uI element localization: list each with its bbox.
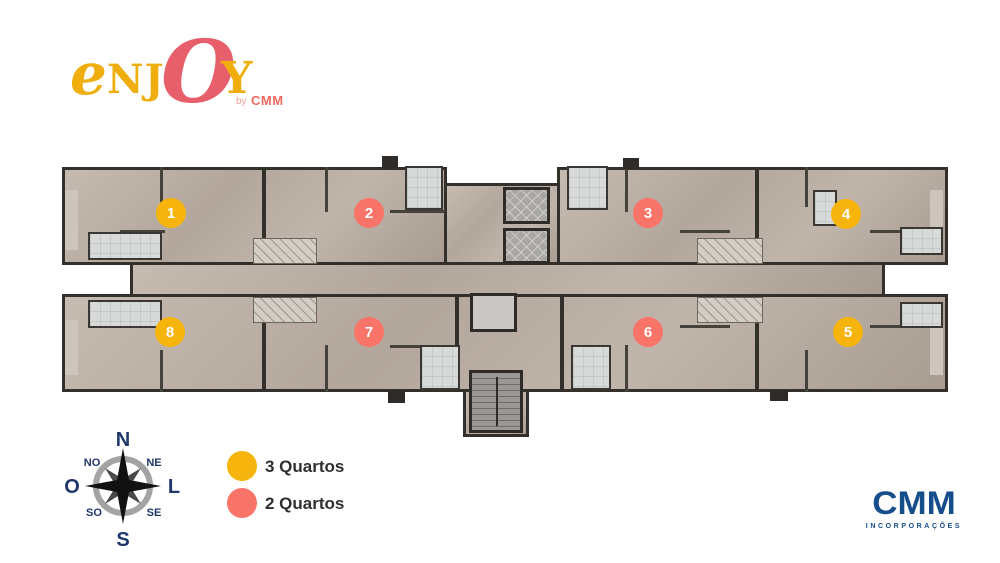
brand-logo: e NJ O Y by CMM: [0, 0, 320, 130]
compass-letter-no: NO: [84, 457, 101, 469]
wall-segment: [805, 167, 808, 207]
cmm-logo-subtitle: INCORPORAÇÕES: [862, 523, 966, 530]
wall-segment: [160, 350, 163, 392]
staircase-icon: [469, 370, 523, 433]
closet-area: [697, 238, 763, 264]
unit-marker-4: 4: [831, 199, 861, 229]
unit-marker-2: 2: [354, 198, 384, 228]
logo-byline-by: by: [236, 97, 247, 107]
compass-letter-o: O: [64, 476, 80, 498]
legend-label-3-quartos: 3 Quartos: [265, 457, 344, 477]
compass-letter-ne: NE: [146, 457, 161, 469]
bathroom-area: [900, 302, 943, 328]
bathroom-area: [88, 300, 162, 328]
bathroom-area: [88, 232, 162, 260]
elevator-shaft-icon: [470, 293, 517, 332]
legend: 3 Quartos 2 Quartos: [220, 440, 400, 530]
floor-plan: 1 2 3 4 5 6 7 8: [60, 150, 948, 442]
wall-segment: [680, 325, 730, 328]
closet-area: [253, 238, 317, 264]
roof-bump: [623, 158, 639, 169]
wall-segment: [625, 345, 628, 392]
elevator-shaft-icon: [503, 187, 550, 224]
wall-segment: [325, 167, 328, 212]
bathroom-area: [405, 166, 443, 210]
compass-rose: N S O L NO NE SO SE: [52, 424, 197, 556]
bathroom-area: [567, 166, 608, 210]
wall-segment: [805, 350, 808, 392]
roof-bump: [382, 156, 398, 169]
compass-star-icon: N S O L NO NE SO SE: [52, 424, 197, 556]
page-root: { "brand": { "logo": { "e": "e", "nj": "…: [0, 0, 1000, 563]
closet-area: [697, 297, 763, 323]
unit-marker-1: 1: [156, 198, 186, 228]
balcony-strip: [65, 320, 78, 375]
balcony-strip: [930, 320, 943, 375]
compass-letter-n: N: [116, 429, 130, 451]
closet-area: [253, 297, 317, 323]
logo-letter-e: e: [70, 45, 107, 103]
cmm-logo-brand: CMM: [862, 487, 966, 519]
bathroom-area: [571, 345, 611, 390]
logo-letter-y: Y: [221, 57, 252, 101]
plan-corridor: [130, 262, 885, 297]
compass-letter-s: S: [116, 529, 129, 551]
elevator-shaft-icon: [503, 228, 550, 264]
unit-marker-6: 6: [633, 317, 663, 347]
wall-segment: [390, 210, 445, 213]
compass-letter-so: SO: [86, 507, 102, 519]
legend-label-2-quartos: 2 Quartos: [265, 494, 344, 514]
cmm-logo: CMM INCORPORAÇÕES: [862, 486, 966, 530]
roof-bump: [770, 390, 788, 401]
stair-divider: [496, 377, 498, 426]
roof-bump: [388, 390, 405, 403]
unit-marker-5: 5: [833, 317, 863, 347]
unit-marker-3: 3: [633, 198, 663, 228]
compass-letter-l: L: [168, 476, 180, 498]
unit-marker-7: 7: [354, 317, 384, 347]
bathroom-area: [900, 227, 943, 255]
wall-segment: [625, 167, 628, 212]
legend-dot-2-quartos: [227, 488, 257, 518]
logo-byline-brand: CMM: [251, 94, 284, 107]
logo-letters-nj: NJ: [107, 60, 165, 100]
balcony-strip: [65, 190, 78, 250]
wall-segment: [560, 294, 564, 392]
wall-segment: [680, 230, 730, 233]
compass-letter-se: SE: [147, 507, 162, 519]
legend-dot-3-quartos: [227, 451, 257, 481]
bathroom-area: [420, 345, 460, 390]
wall-segment: [325, 345, 328, 392]
unit-marker-8: 8: [155, 317, 185, 347]
